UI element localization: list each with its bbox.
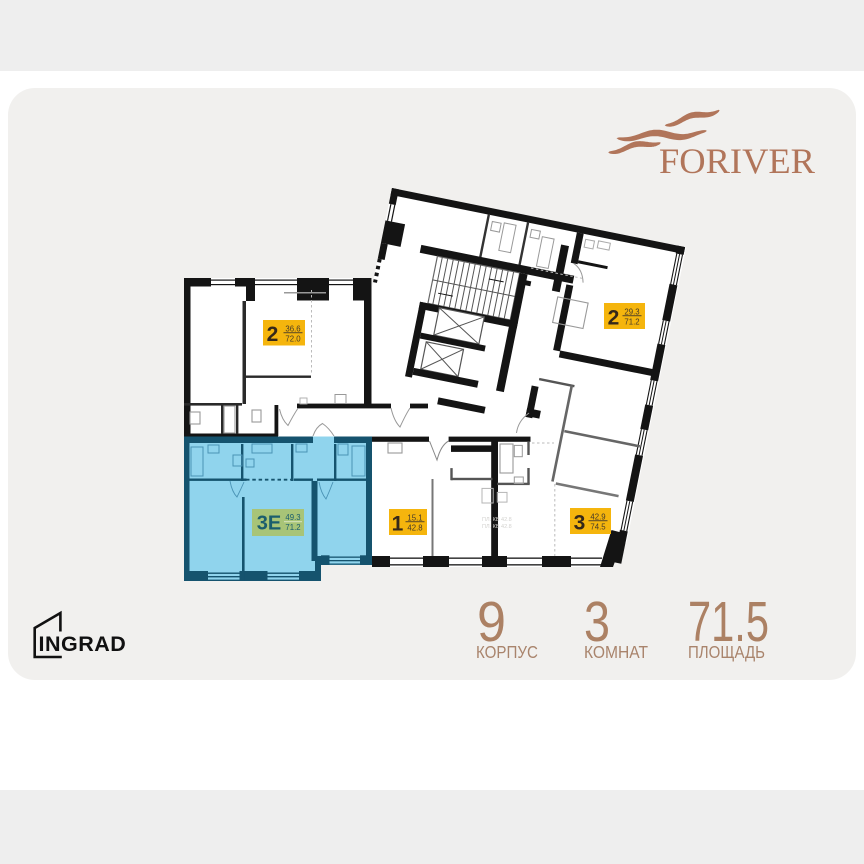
svg-text:15.1: 15.1 <box>407 514 422 523</box>
svg-text:36.6: 36.6 <box>285 325 300 334</box>
svg-text:29.3: 29.3 <box>624 308 639 317</box>
svg-text:ПЛ. КВ 42.8: ПЛ. КВ 42.8 <box>482 524 512 530</box>
svg-text:72.0: 72.0 <box>285 335 301 344</box>
svg-text:КОРПУС: КОРПУС <box>476 642 538 662</box>
svg-text:42.8: 42.8 <box>407 524 422 533</box>
svg-text:71.2: 71.2 <box>624 318 639 327</box>
svg-text:2: 2 <box>267 323 279 346</box>
svg-text:3: 3 <box>574 512 586 535</box>
svg-text:74.5: 74.5 <box>590 523 606 532</box>
svg-text:71.2: 71.2 <box>285 523 300 532</box>
svg-text:INGRAD: INGRAD <box>39 632 127 656</box>
svg-text:ПЛОЩАДЬ: ПЛОЩАДЬ <box>688 642 765 662</box>
svg-text:49.3: 49.3 <box>285 513 300 522</box>
svg-text:1: 1 <box>392 513 404 536</box>
svg-text:КОМНАТ: КОМНАТ <box>584 642 648 662</box>
svg-text:ПЛ. КВ 42.8: ПЛ. КВ 42.8 <box>482 517 512 523</box>
svg-text:3E: 3E <box>257 513 281 535</box>
svg-text:42.9: 42.9 <box>590 513 605 522</box>
svg-text:2: 2 <box>608 307 620 330</box>
svg-text:FORIVER: FORIVER <box>659 141 815 181</box>
